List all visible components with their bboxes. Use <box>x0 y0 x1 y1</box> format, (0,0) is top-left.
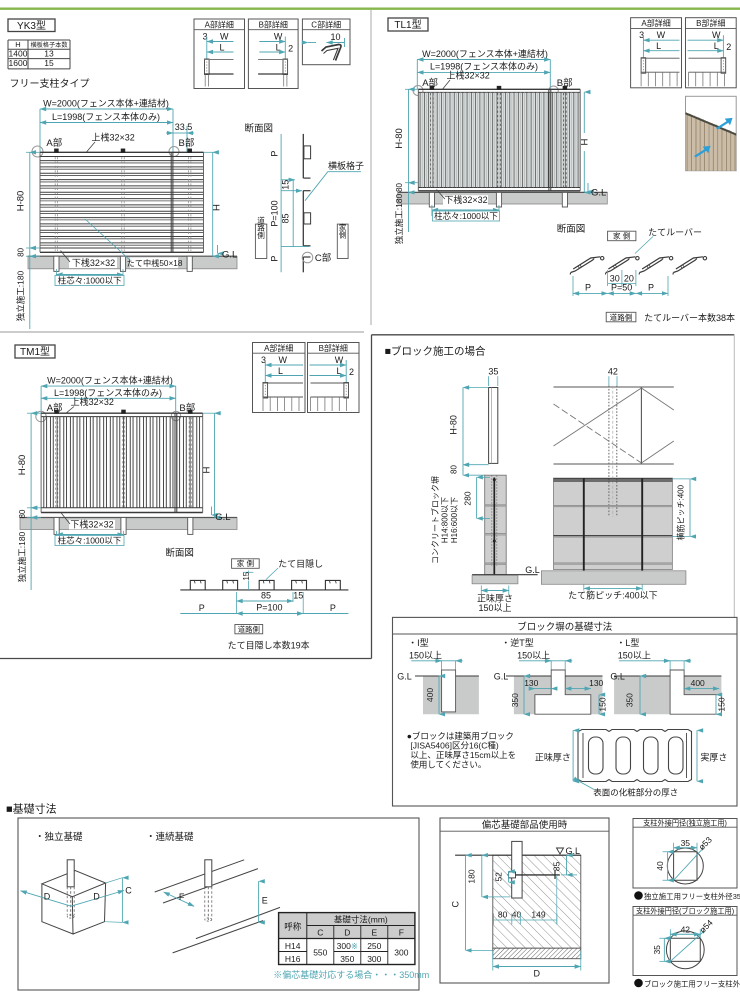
svg-text:独立施工:180: 独立施工:180 <box>394 193 404 244</box>
svg-text:400: 400 <box>691 678 705 688</box>
svg-text:G.L: G.L <box>610 672 625 682</box>
svg-text:B部: B部 <box>179 137 195 149</box>
svg-text:W: W <box>335 355 344 365</box>
svg-text:80: 80 <box>450 465 459 474</box>
svg-text:柱芯々:1000以下: 柱芯々:1000以下 <box>434 211 498 221</box>
svg-text:G.L: G.L <box>494 672 509 682</box>
svg-text:以上、正味厚さ15cm以上を: 以上、正味厚さ15cm以上を <box>410 750 516 760</box>
svg-text:300※: 300※ <box>337 941 358 951</box>
svg-text:W: W <box>712 30 721 40</box>
svg-text:2: 2 <box>726 42 731 52</box>
svg-text:■基礎寸法: ■基礎寸法 <box>6 802 57 816</box>
svg-text:※偏芯基礎対応する場合・・・350mm: ※偏芯基礎対応する場合・・・350mm <box>273 969 429 980</box>
svg-text:●ブロックは建築用ブロック: ●ブロックは建築用ブロック <box>407 731 514 741</box>
svg-text:W=2000(フェンス本体+連結材): W=2000(フェンス本体+連結材) <box>43 98 169 109</box>
svg-text:P=100: P=100 <box>269 200 279 226</box>
svg-text:P: P <box>585 283 591 293</box>
svg-text:横筋ピッチ:400: 横筋ピッチ:400 <box>675 484 685 540</box>
svg-text:250: 250 <box>367 941 381 951</box>
svg-text:・I型: ・I型 <box>408 638 429 648</box>
svg-text:家側: 家側 <box>338 222 347 239</box>
svg-text:W: W <box>274 31 283 41</box>
svg-text:独立施工:180: 独立施工:180 <box>17 531 27 582</box>
svg-text:G.L: G.L <box>222 250 237 261</box>
svg-text:400: 400 <box>425 688 435 702</box>
svg-text:C部詳細: C部詳細 <box>311 19 341 29</box>
svg-text:B部詳細: B部詳細 <box>696 18 725 28</box>
svg-text:15: 15 <box>293 591 303 601</box>
svg-text:G.L: G.L <box>397 672 412 682</box>
svg-text:道路側: 道路側 <box>238 625 260 634</box>
svg-text:300: 300 <box>394 947 408 957</box>
svg-text:80: 80 <box>498 909 508 919</box>
svg-text:350: 350 <box>625 693 635 707</box>
svg-text:W: W <box>279 355 288 365</box>
svg-text:フリー支柱タイプ: フリー支柱タイプ <box>10 77 90 90</box>
svg-text:550: 550 <box>313 947 327 957</box>
svg-text:W: W <box>220 31 229 41</box>
svg-text:柱芯々:1000以下: 柱芯々:1000以下 <box>58 536 122 546</box>
svg-text:P: P <box>648 283 654 293</box>
svg-text:・連続基礎: ・連続基礎 <box>146 831 194 843</box>
svg-text:たて目隠し: たて目隠し <box>278 558 323 569</box>
svg-text:L: L <box>714 41 719 51</box>
svg-text:2: 2 <box>349 367 354 377</box>
svg-text:W: W <box>657 30 666 40</box>
svg-text:支柱外接円径(ブロック施工用): 支柱外接円径(ブロック施工用) <box>636 906 734 915</box>
svg-text:G.L: G.L <box>215 512 230 523</box>
svg-text:C: C <box>451 901 461 908</box>
svg-text:42: 42 <box>608 367 618 377</box>
svg-text:350: 350 <box>510 693 520 707</box>
svg-text:H: H <box>212 204 223 211</box>
svg-text:W=2000(フェンス本体+連結材): W=2000(フェンス本体+連結材) <box>47 375 173 386</box>
svg-text:家 側: 家 側 <box>613 231 631 241</box>
svg-text:130: 130 <box>524 678 538 688</box>
svg-text:B部詳細: B部詳細 <box>259 19 288 29</box>
svg-text:・独立基礎: ・独立基礎 <box>35 831 83 843</box>
svg-text:家 側: 家 側 <box>237 558 255 568</box>
svg-text:F: F <box>179 892 185 902</box>
svg-text:L: L <box>220 43 225 53</box>
svg-text:H: H <box>580 138 591 145</box>
svg-text:下桟32×32: 下桟32×32 <box>444 194 487 205</box>
svg-text:13: 13 <box>44 49 54 59</box>
svg-text:150以上: 150以上 <box>618 650 651 660</box>
svg-text:40: 40 <box>655 861 665 871</box>
svg-text:A部詳細: A部詳細 <box>641 18 670 28</box>
svg-text:下桟32×32: 下桟32×32 <box>70 519 113 530</box>
svg-text:D: D <box>44 892 51 902</box>
svg-text:偏芯基礎部品使用時: 偏芯基礎部品使用時 <box>482 819 568 831</box>
svg-text:B部詳細: B部詳細 <box>319 343 348 353</box>
svg-text:85: 85 <box>261 591 271 601</box>
svg-text:2: 2 <box>288 44 293 54</box>
svg-text:C: C <box>317 928 323 938</box>
svg-text:・L型: ・L型 <box>616 638 639 648</box>
svg-text:E: E <box>371 928 377 938</box>
svg-text:正味厚さ: 正味厚さ <box>535 752 571 763</box>
svg-text:P=50: P=50 <box>611 283 632 293</box>
svg-text:P=100: P=100 <box>256 603 282 613</box>
svg-text:85: 85 <box>551 862 561 872</box>
svg-text:独立施工用フリー支柱外径35×40: 独立施工用フリー支柱外径35×40 <box>644 892 740 901</box>
svg-text:道路側: 道路側 <box>256 215 265 239</box>
svg-text:呼称: 呼称 <box>284 922 302 932</box>
svg-text:D: D <box>344 928 350 938</box>
svg-text:上桟32×32: 上桟32×32 <box>447 69 490 80</box>
svg-text:180: 180 <box>467 869 477 883</box>
svg-text:たてルーバー: たてルーバー <box>648 227 702 237</box>
svg-text:1400: 1400 <box>9 49 28 59</box>
svg-text:断面図: 断面図 <box>165 547 194 559</box>
svg-text:80: 80 <box>18 509 27 518</box>
svg-text:柱芯々:1000以下: 柱芯々:1000以下 <box>58 276 122 286</box>
svg-text:G.L: G.L <box>591 187 606 198</box>
svg-text:15: 15 <box>44 58 54 68</box>
svg-text:35: 35 <box>488 367 498 377</box>
svg-text:150以上: 150以上 <box>517 650 550 660</box>
svg-text:H14:800以下: H14:800以下 <box>440 497 449 543</box>
svg-text:表面の化粧部分の厚さ: 表面の化粧部分の厚さ <box>593 788 678 798</box>
svg-text:D: D <box>93 892 100 902</box>
svg-text:150: 150 <box>717 697 727 711</box>
svg-text:33.5: 33.5 <box>175 122 193 132</box>
svg-text:15: 15 <box>281 180 291 190</box>
svg-text:P: P <box>269 151 279 157</box>
svg-text:L: L <box>336 366 341 376</box>
svg-text:L: L <box>278 366 283 376</box>
svg-text:断面図: 断面図 <box>245 123 274 135</box>
svg-text:G.L: G.L <box>525 565 540 575</box>
svg-text:350: 350 <box>340 954 354 964</box>
svg-text:■ブロック施工の場合: ■ブロック施工の場合 <box>385 345 486 358</box>
svg-text:130: 130 <box>589 678 603 688</box>
svg-text:H: H <box>202 466 213 473</box>
svg-text:独立施工:180: 独立施工:180 <box>16 270 26 321</box>
svg-text:L=1998(フェンス本体のみ): L=1998(フェンス本体のみ) <box>52 111 160 122</box>
svg-text:H-80: H-80 <box>394 128 405 149</box>
svg-text:道路側: 道路側 <box>610 312 633 322</box>
svg-text:300: 300 <box>367 954 381 964</box>
svg-text:L: L <box>276 43 281 53</box>
svg-text:P: P <box>330 603 336 613</box>
svg-text:15: 15 <box>242 571 251 580</box>
svg-text:80: 80 <box>17 247 26 256</box>
svg-text:H16:600以下: H16:600以下 <box>450 497 459 543</box>
svg-text:C: C <box>125 886 132 896</box>
svg-text:コンクリートブロック塀: コンクリートブロック塀 <box>430 476 440 564</box>
svg-text:L: L <box>656 41 661 51</box>
svg-text:W=2000(フェンス本体+連結材): W=2000(フェンス本体+連結材) <box>422 48 548 59</box>
svg-text:P: P <box>199 603 205 613</box>
svg-text:基礎寸法(mm): 基礎寸法(mm) <box>334 915 388 925</box>
svg-text:150以上: 150以上 <box>409 650 442 660</box>
svg-text:H-80: H-80 <box>17 455 28 476</box>
svg-text:上桟32×32: 上桟32×32 <box>71 396 114 407</box>
svg-text:下桟32×32: 下桟32×32 <box>72 257 115 268</box>
svg-text:G.L: G.L <box>566 846 581 856</box>
svg-text:A部詳細: A部詳細 <box>264 343 293 353</box>
svg-text:たてルーバー本数38本: たてルーバー本数38本 <box>644 312 735 323</box>
svg-text:H14: H14 <box>285 941 301 951</box>
svg-text:52: 52 <box>493 872 503 882</box>
svg-text:[JISA5406]区分16(C種): [JISA5406]区分16(C種) <box>410 741 499 751</box>
svg-text:10: 10 <box>330 32 340 42</box>
svg-text:280: 280 <box>462 491 472 505</box>
svg-text:F: F <box>399 928 404 938</box>
svg-text:・逆T型: ・逆T型 <box>501 637 534 648</box>
svg-text:35: 35 <box>652 945 662 955</box>
svg-text:D: D <box>534 969 541 979</box>
svg-text:1600: 1600 <box>9 58 28 68</box>
svg-text:B部: B部 <box>179 402 195 414</box>
svg-text:ブロック塀の基礎寸法: ブロック塀の基礎寸法 <box>517 621 612 633</box>
svg-text:H-80: H-80 <box>16 191 27 212</box>
svg-text:H-80: H-80 <box>449 415 459 435</box>
svg-text:E: E <box>262 896 268 906</box>
svg-text:正味厚さ: 正味厚さ <box>477 593 513 604</box>
svg-text:P: P <box>269 256 279 262</box>
svg-text:35: 35 <box>681 838 691 848</box>
svg-text:80: 80 <box>395 183 404 192</box>
svg-text:たて筋ピッチ:400以下: たて筋ピッチ:400以下 <box>568 590 658 601</box>
svg-text:ブロック施工用フリー支柱外径42×35: ブロック施工用フリー支柱外径42×35 <box>644 979 740 988</box>
svg-text:A部: A部 <box>46 137 62 149</box>
svg-text:150以上: 150以上 <box>478 603 511 613</box>
svg-text:TL1型: TL1型 <box>394 18 421 31</box>
svg-text:上桟32×32: 上桟32×32 <box>92 131 135 142</box>
svg-text:YK3型: YK3型 <box>17 19 46 32</box>
svg-text:C部: C部 <box>315 252 331 264</box>
svg-text:TM1型: TM1型 <box>20 345 50 358</box>
svg-text:支柱外接円径(独立施工用): 支柱外接円径(独立施工用) <box>643 818 727 827</box>
svg-text:実厚さ: 実厚さ <box>700 752 727 763</box>
svg-text:149: 149 <box>531 909 545 919</box>
svg-text:たて目隠し本数19本: たて目隠し本数19本 <box>228 639 310 650</box>
svg-text:たて中桟50×18: たて中桟50×18 <box>127 258 183 268</box>
svg-text:85: 85 <box>281 213 291 223</box>
svg-text:42: 42 <box>681 924 691 934</box>
svg-text:150: 150 <box>598 697 608 711</box>
svg-text:H16: H16 <box>285 954 301 964</box>
svg-text:A部詳細: A部詳細 <box>205 19 234 29</box>
svg-text:使用してください。: 使用してください。 <box>410 760 486 770</box>
svg-text:横板格子: 横板格子 <box>328 160 364 171</box>
svg-text:断面図: 断面図 <box>557 223 586 235</box>
